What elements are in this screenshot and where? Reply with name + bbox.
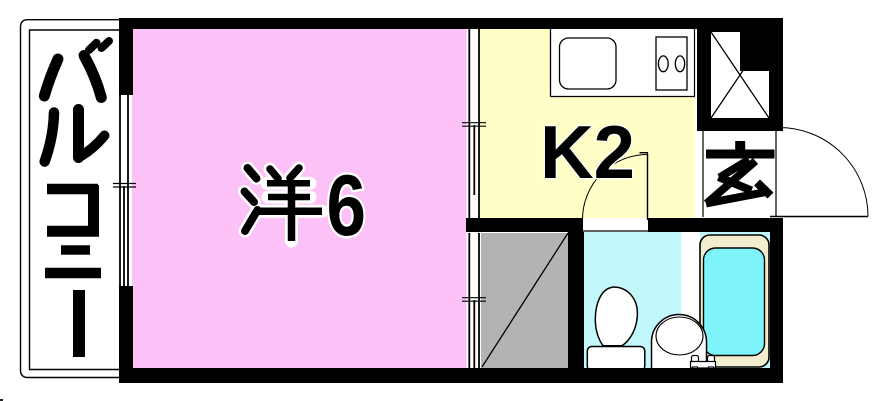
svg-text:K2: K2 xyxy=(540,110,635,194)
svg-text:6: 6 xyxy=(327,158,367,254)
